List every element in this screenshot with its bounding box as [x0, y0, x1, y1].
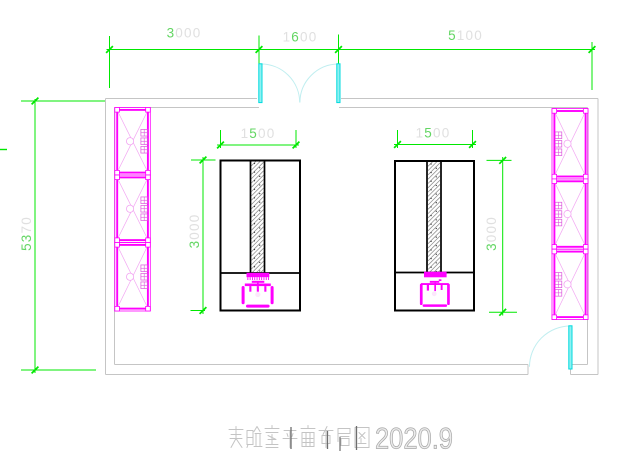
svg-text:3000: 3000 — [187, 214, 202, 249]
svg-text:5370: 5370 — [19, 216, 34, 251]
svg-text:1600: 1600 — [283, 30, 318, 45]
svg-text:3000: 3000 — [484, 216, 499, 251]
svg-text:1500: 1500 — [241, 126, 276, 141]
svg-text:1500: 1500 — [416, 126, 451, 141]
svg-text:2020.9: 2020.9 — [375, 423, 453, 456]
svg-text:5100: 5100 — [448, 28, 483, 43]
svg-text:3000: 3000 — [167, 26, 202, 41]
